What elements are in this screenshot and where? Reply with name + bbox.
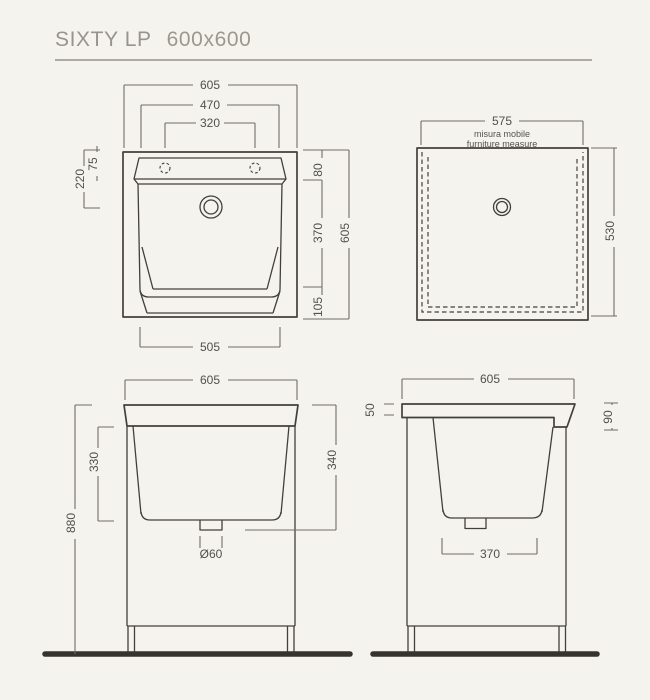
dim-tapholes-span: 320	[165, 116, 255, 148]
basin-top-view-drawing: 605 470 320 75 220	[60, 75, 370, 360]
dim-label-330: 330	[87, 452, 101, 472]
dim-label-50: 50	[363, 403, 377, 417]
dim-label-370-right: 370	[311, 223, 325, 243]
dim-label-605: 605	[200, 373, 220, 387]
dim-width: 605	[402, 372, 574, 399]
dim-depth: 530	[591, 148, 617, 316]
dim-label-340: 340	[325, 450, 339, 470]
dim-label-880: 880	[64, 513, 78, 533]
taphole-right	[250, 163, 260, 173]
dim-label-105: 105	[311, 297, 325, 317]
dim-top-overall: 605	[124, 78, 297, 148]
drain-hole-inner	[497, 202, 508, 213]
dim-right-stack: 80 370 105 605	[303, 150, 352, 319]
dim-label-605-right: 605	[338, 223, 352, 243]
product-name: SIXTY LP	[55, 28, 152, 51]
cabinet-top-view-drawing: 575 misura mobile furniture measure 530	[390, 105, 640, 340]
dim-label-320: 320	[200, 116, 220, 130]
sink-and-cabinet	[124, 405, 298, 652]
dim-label-605-top: 605	[200, 78, 220, 92]
dim-front-edge-height: 90	[601, 403, 618, 430]
dim-label-d60: Ø60	[200, 547, 223, 561]
datasheet-page: SIXTY LP600x600 605 470 320	[0, 0, 650, 700]
dim-label-605: 605	[480, 372, 500, 386]
dim-label-470: 470	[200, 98, 220, 112]
dim-top-thickness: 50	[363, 403, 394, 417]
dim-label-80: 80	[311, 163, 325, 177]
dim-label-505: 505	[200, 340, 220, 354]
side-view-drawing: 605 50 90 370	[360, 370, 650, 665]
drain-hole-inner	[204, 200, 218, 214]
cabinet-feet	[408, 626, 566, 652]
front-view-drawing: 605 330 880 340 Ø60	[40, 370, 360, 665]
dim-label-90: 90	[601, 410, 615, 424]
drain-stub	[200, 521, 222, 531]
dim-basin-depth: 330	[87, 427, 114, 521]
dim-basin-bottom-width: 370	[442, 538, 537, 561]
dim-furniture-width: 575 misura mobile furniture measure	[421, 114, 583, 149]
dim-label-75: 75	[86, 157, 100, 171]
dim-label-370: 370	[480, 547, 500, 561]
dim-label-530: 530	[603, 221, 617, 241]
drain-hole-outer	[200, 196, 222, 218]
dim-width: 605	[125, 373, 297, 400]
cabinet-feet	[128, 626, 294, 652]
sink-and-cabinet	[402, 404, 575, 652]
cabinet-outline	[417, 148, 588, 320]
dim-drain-diameter: Ø60	[200, 536, 223, 561]
note-misura-mobile: misura mobile	[474, 129, 530, 139]
dim-bottom-width: 505	[140, 327, 280, 354]
taphole-left	[160, 163, 170, 173]
dim-left-ledge-depth: 75	[86, 146, 100, 181]
dim-total-height: 880	[64, 405, 92, 654]
product-size: 600x600	[167, 28, 252, 51]
basin-outline	[123, 152, 297, 317]
dim-height-to-drain: 340	[245, 405, 339, 530]
drain-stub	[465, 519, 486, 529]
title-divider	[55, 59, 592, 61]
dim-label-220: 220	[73, 169, 87, 189]
page-title: SIXTY LP600x600	[55, 28, 251, 52]
dim-label-575: 575	[492, 114, 512, 128]
